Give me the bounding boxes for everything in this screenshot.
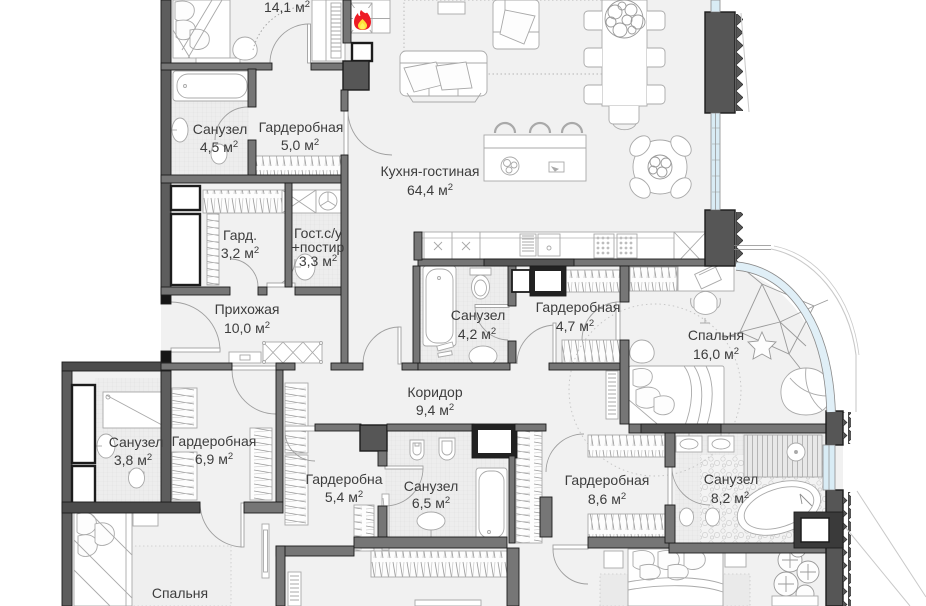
svg-text:4,2 м2: 4,2 м2 [458, 326, 496, 342]
svg-text:3,2 м2: 3,2 м2 [221, 245, 259, 261]
svg-text:Спальня: Спальня [688, 327, 744, 343]
svg-text:64,4 м2: 64,4 м2 [407, 182, 453, 198]
svg-text:Гард.: Гард. [223, 227, 257, 243]
svg-text:6,5 м2: 6,5 м2 [412, 495, 450, 511]
svg-text:5,4 м2: 5,4 м2 [325, 489, 363, 505]
svg-text:Спальня: Спальня [152, 585, 208, 601]
svg-text:Гардеробная: Гардеробная [565, 472, 650, 488]
svg-text:6,9 м2: 6,9 м2 [195, 451, 233, 467]
svg-text:Санузел: Санузел [704, 471, 759, 487]
svg-text:Гардеробная: Гардеробная [259, 119, 344, 135]
svg-text:Гардеробная: Гардеробная [536, 299, 621, 315]
svg-text:9,4 м2: 9,4 м2 [416, 402, 454, 418]
svg-text:Санузел: Санузел [404, 478, 459, 494]
svg-text:Санузел: Санузел [193, 121, 248, 137]
svg-text:Коридор: Коридор [407, 384, 463, 400]
svg-text:3,3 м2: 3,3 м2 [299, 253, 337, 269]
svg-text:Кухня-гостиная: Кухня-гостиная [380, 163, 479, 179]
svg-text:Гардеробна: Гардеробна [305, 471, 382, 487]
svg-text:Гардеробная: Гардеробная [172, 433, 257, 449]
svg-text:4,7 м2: 4,7 м2 [556, 318, 594, 334]
svg-text:Прихожая: Прихожая [215, 301, 280, 317]
svg-text:8,6 м2: 8,6 м2 [588, 491, 626, 507]
svg-text:5,0 м2: 5,0 м2 [281, 137, 319, 153]
svg-text:4,5 м2: 4,5 м2 [200, 139, 238, 155]
svg-text:3,8 м2: 3,8 м2 [114, 452, 152, 468]
svg-text:Санузел: Санузел [451, 307, 506, 323]
svg-text:8,2 м2: 8,2 м2 [711, 490, 749, 506]
svg-text:Санузел: Санузел [109, 434, 164, 450]
svg-text:10,0 м2: 10,0 м2 [224, 320, 270, 336]
svg-text:14,1 м2: 14,1 м2 [264, 0, 310, 15]
svg-text:16,0 м2: 16,0 м2 [693, 346, 739, 362]
